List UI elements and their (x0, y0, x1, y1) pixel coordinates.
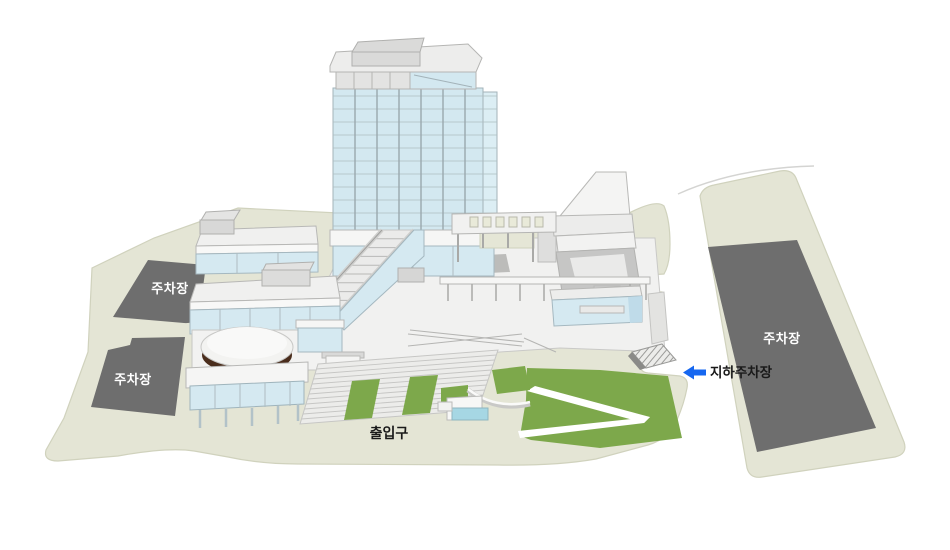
oval-roof-top (207, 327, 287, 359)
wall-side (628, 296, 642, 323)
entrance-label: 출입구 (370, 425, 409, 441)
pavilion-step (438, 402, 452, 411)
parking-label-lower-left: 주차장 (114, 372, 151, 387)
arrow-left-icon (683, 366, 706, 380)
plaza-right-step (648, 292, 668, 344)
ledge (580, 306, 624, 313)
stair-box (398, 268, 424, 282)
parking-label-right: 주차장 (763, 331, 800, 346)
underground-parking-callout: 지하주차장 (683, 364, 773, 380)
railing-beam (440, 277, 650, 284)
pool (452, 408, 488, 420)
site-map-canvas: 주차장 주차장 주차장 출입구 지하주차장 (0, 0, 950, 550)
tower-glass-side (483, 92, 497, 232)
lawn-small-upper (492, 366, 530, 394)
roof-box (200, 220, 234, 234)
tower-top-floor (336, 72, 410, 89)
site-map: 주차장 주차장 주차장 출입구 지하주차장 (0, 0, 950, 550)
right-lower-building (550, 286, 642, 326)
underground-parking-label: 지하주차장 (710, 364, 773, 380)
parking-label-upper-left: 주차장 (151, 281, 188, 296)
annex-slanted-roof (560, 172, 630, 216)
box-slab (296, 320, 344, 328)
box-wall (298, 328, 342, 352)
roof-box (262, 270, 310, 286)
